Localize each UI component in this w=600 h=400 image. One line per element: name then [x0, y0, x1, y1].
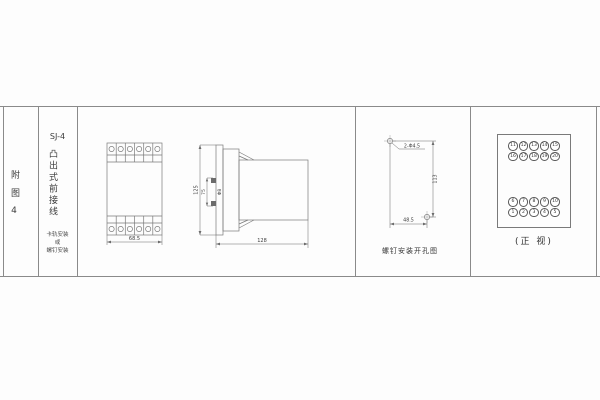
side-view-spacing-dim-label: 75 — [201, 189, 207, 195]
mount-note-line: 或 — [38, 239, 77, 247]
terminal-13: 13 — [529, 141, 539, 151]
terminal-diagram-caption: (正 视) — [495, 234, 573, 247]
model-label: SJ-4 — [38, 132, 77, 141]
terminal-11: 11 — [508, 141, 518, 151]
side-view-depth-dim-label: 128 — [257, 238, 267, 244]
drill-height-dim-label: 113 — [433, 174, 439, 183]
terminal-20: 20 — [550, 152, 560, 162]
side-view-outline — [211, 145, 308, 235]
frame-left-line — [3, 106, 4, 276]
divider-title-column — [77, 106, 78, 276]
figure-sheet: 附图4 SJ-4 凸出式前接线 卡轨安装 或 螺钉安装 — [0, 0, 600, 400]
drill-diagram-caption: 螺钉安装开孔图 — [358, 246, 462, 256]
terminal-diagram: 1112131415 1617181920 678910 12345 — [497, 134, 571, 228]
terminal-1: 1 — [508, 208, 518, 218]
terminal-19: 19 — [540, 152, 550, 162]
drill-holes — [387, 138, 429, 219]
terminal-18: 18 — [529, 152, 539, 162]
mount-note-line: 卡轨安装 — [38, 231, 77, 239]
drill-diagram: 2-Φ4.5 113 48.5 — [368, 128, 464, 262]
frame-top-line — [0, 106, 600, 107]
terminal-2: 2 — [519, 208, 529, 218]
terminal-7: 7 — [519, 197, 529, 207]
terminal-4: 4 — [540, 208, 550, 218]
terminal-8: 8 — [529, 197, 539, 207]
front-view-outline — [107, 143, 162, 235]
terminal-9: 9 — [540, 197, 550, 207]
terminal-row-lower-1: 678910 — [508, 197, 560, 207]
drill-holes-callout-label: 2-Φ4.5 — [404, 144, 420, 150]
terminal-14: 14 — [540, 141, 550, 151]
side-view-drawing: 125 75 Φ8 128 — [188, 123, 315, 255]
figure-ref-label: 附图4 — [8, 170, 32, 225]
terminal-10: 10 — [550, 197, 560, 207]
side-view-stud-label: Φ8 — [217, 189, 223, 195]
terminal-5: 5 — [550, 208, 560, 218]
divider-terminal-column — [470, 106, 471, 276]
side-view-dimensions — [199, 145, 308, 248]
front-view-drawing: 68.5 — [95, 132, 175, 250]
mount-note-line: 螺钉安装 — [38, 247, 77, 255]
terminal-17: 17 — [519, 152, 529, 162]
type-label: 凸出式前接线 — [46, 149, 68, 218]
terminal-row-upper-1: 1112131415 — [508, 141, 560, 151]
terminal-3: 3 — [529, 208, 539, 218]
terminal-row-lower-2: 12345 — [508, 208, 560, 218]
mount-note: 卡轨安装 或 螺钉安装 — [38, 231, 77, 255]
front-view-width-dim-label: 68.5 — [129, 236, 140, 242]
terminal-row-upper-2: 1617181920 — [508, 152, 560, 162]
side-view-height-dim-label: 125 — [194, 185, 200, 195]
terminal-12: 12 — [519, 141, 529, 151]
divider-drill-column — [355, 106, 356, 276]
terminal-6: 6 — [508, 197, 518, 207]
drill-width-dim-label: 48.5 — [403, 218, 414, 224]
terminal-16: 16 — [508, 152, 518, 162]
terminal-15: 15 — [550, 141, 560, 151]
frame-right-line — [596, 106, 597, 276]
frame-bottom-line — [0, 276, 600, 277]
